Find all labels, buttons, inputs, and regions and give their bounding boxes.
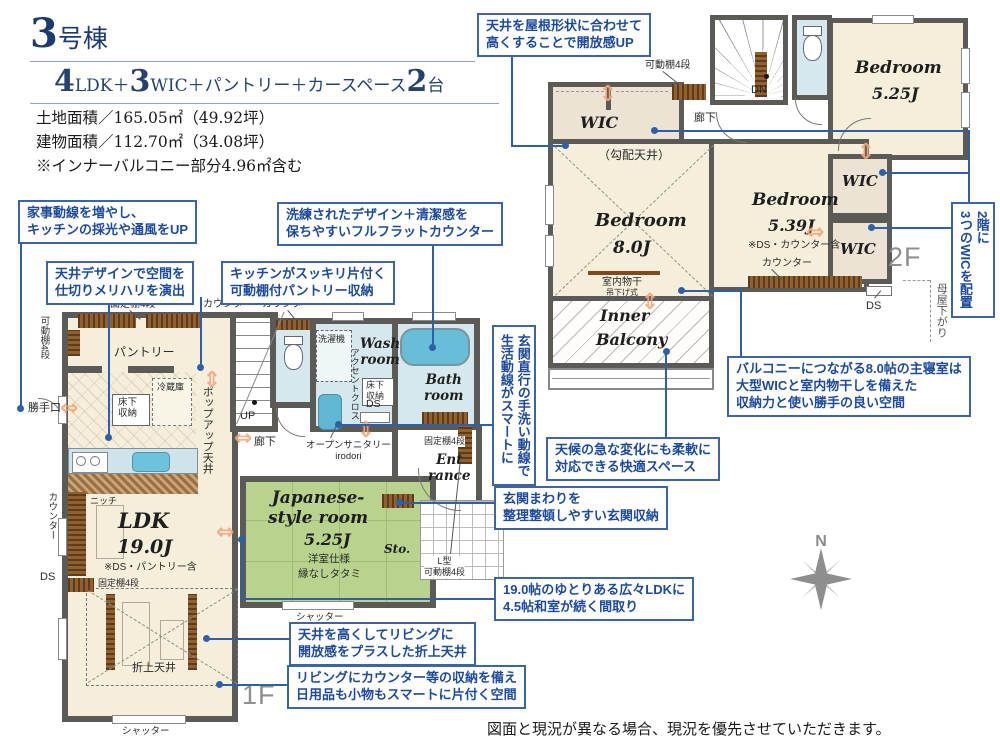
- disclaimer: 図面と現況が異なる場合、現況を優先させていただきます。: [487, 718, 891, 739]
- window-mark: [412, 312, 456, 321]
- callout-roof-ceiling: 天井を屋根形状に合わせて 高くすることで開放感UP: [477, 13, 651, 57]
- connector-dot: [203, 635, 210, 642]
- callout-oriage: 天井を高くしてリビングに 開放感をプラスした折上天井: [289, 622, 476, 666]
- toilet-tank-icon: [284, 336, 303, 345]
- moya-dash: [930, 280, 931, 342]
- up-label: UP: [240, 410, 255, 423]
- bedroom-539-note: ※DS・カウンター含: [748, 240, 840, 252]
- connector-line: [872, 227, 952, 229]
- connector-line: [968, 130, 970, 204]
- low-table: [160, 620, 184, 660]
- building-number: 3: [30, 10, 58, 57]
- movable-shelf-2f: [672, 84, 706, 100]
- popup-ceiling-label: ポップアップ天井: [200, 386, 213, 474]
- building-suffix: 号棟: [58, 24, 108, 53]
- counter-left-wood: [68, 492, 86, 576]
- moya-dash: [903, 280, 930, 281]
- flow-arrow-icon: ⇔: [216, 522, 234, 544]
- l-shelf-label: L型 可動棚4段: [424, 556, 465, 578]
- callout-pantry: キッチンがスッキリ片付く 可動棚付パントリー収納: [221, 261, 395, 305]
- connector-dot: [879, 169, 886, 176]
- wic1-label: WIC: [580, 113, 618, 132]
- coffered-ceiling-label: 折上天井: [132, 662, 176, 675]
- ds-2f-label: DS: [866, 300, 881, 313]
- connector-line: [740, 290, 742, 356]
- door-arc: [795, 98, 822, 125]
- counter-left-label: カウンター: [46, 492, 57, 540]
- toilet-counter: [276, 320, 310, 330]
- fixed-shelf-ldk: [68, 578, 94, 592]
- connector-line: [432, 237, 434, 347]
- layout-part: WIC＋パントリー＋カースペース: [150, 76, 406, 96]
- bedroom-525-name: Bedroom: [855, 58, 942, 78]
- flow-arrow-icon: ⇔: [354, 420, 376, 438]
- bedroom-80-name: Bedroom: [595, 210, 687, 231]
- sofa: [122, 602, 150, 666]
- bedroom-525-size: 5.25J: [872, 84, 919, 103]
- window-mark: [961, 92, 970, 128]
- layout-part: 3: [130, 64, 151, 99]
- layout-part: 4: [54, 64, 75, 99]
- area-note: ※インナーバルコニー部分4.96㎡含む: [36, 154, 303, 178]
- flow-arrow-icon: ⇔: [596, 84, 618, 102]
- stove-burner-icon: [90, 456, 100, 466]
- connector-line: [511, 57, 513, 147]
- entrance-fixed-shelf-label: 固定棚4段: [424, 436, 465, 447]
- window-mark: [545, 235, 554, 267]
- japanese-room-size: 5.25J: [304, 530, 351, 549]
- dn-label: DN: [751, 84, 767, 97]
- storage-label: Sto.: [384, 542, 410, 556]
- bath-room-name: Bath room: [424, 372, 463, 404]
- balcony-rail-line: [552, 378, 710, 379]
- back-door-label: 勝手口: [28, 402, 61, 415]
- fixed-shelf-top: [146, 314, 200, 328]
- ldk-name: LDK: [118, 508, 169, 533]
- connector-dot: [663, 348, 670, 355]
- connector-dot: [335, 421, 342, 428]
- wall-stub: [62, 366, 102, 373]
- counter-front: [68, 474, 198, 494]
- connector-line: [241, 598, 494, 600]
- connector-dot: [562, 142, 569, 149]
- flow-arrow-icon: ⇔: [638, 292, 660, 310]
- movable-shelf-label: 可動棚4段: [38, 316, 49, 359]
- up-dot: [252, 400, 257, 405]
- connector-line: [665, 352, 667, 437]
- entrance-shelf-h: [422, 412, 468, 424]
- callout-ldk: 19.0帖のゆとりある広々LDKに 4.5帖和室が続く間取り: [494, 577, 694, 621]
- layout-part: 2: [407, 64, 428, 99]
- land-area: 土地面積／165.05㎡（49.92坪）: [36, 106, 303, 130]
- compass-icon: N: [786, 528, 856, 623]
- niche-label: ニッチ: [90, 496, 117, 507]
- area-info: 土地面積／165.05㎡（49.92坪） 建物面積／112.70㎡（34.08坪…: [36, 106, 303, 178]
- shutter-label-ldk: シャッター: [122, 726, 170, 737]
- hanger-rail: [616, 91, 668, 92]
- flow-arrow-icon: ⇔: [200, 370, 222, 388]
- connector-line: [200, 297, 202, 367]
- window-mark: [545, 185, 554, 225]
- washer-label: 洗濯機: [318, 334, 345, 345]
- connector-dot: [868, 224, 875, 231]
- moya-label: 母屋下がり: [934, 283, 947, 338]
- toilet-tank-icon: [803, 26, 822, 36]
- connector-line: [682, 290, 742, 292]
- window-mark: [282, 601, 354, 610]
- connector-dot: [678, 287, 685, 294]
- counter-2f-label: カウンター: [762, 258, 812, 270]
- inner-balcony-name2: Balcony: [596, 330, 667, 349]
- callout-flat-counter: 洗練されたデザイン＋清潔感を 保ちやすいフルフラットカウンター: [277, 202, 503, 246]
- flow-arrow-icon: ⇔: [806, 222, 824, 244]
- connector-line: [20, 240, 22, 408]
- window-mark: [961, 48, 970, 84]
- connector-line: [241, 540, 243, 600]
- movable-shelf-2f-label: 可動棚4段: [645, 60, 691, 72]
- connector-line: [207, 638, 289, 640]
- underfloor-storage-kitchen-label: 床下 収納: [118, 397, 137, 420]
- window-mark: [112, 715, 186, 724]
- connector-dot: [17, 405, 24, 412]
- connector-dot: [651, 127, 658, 134]
- japanese-room-note1: 洋室仕様: [308, 553, 350, 566]
- door-arc: [276, 408, 305, 437]
- ldk-size: 19.0J: [117, 536, 172, 558]
- connector-line: [108, 297, 110, 437]
- connector-dot: [396, 499, 403, 506]
- refrigerator-label: 冷蔵庫: [157, 382, 184, 393]
- connector-dot: [238, 536, 245, 543]
- window-mark: [58, 518, 67, 556]
- connector-dot: [429, 344, 436, 351]
- connector-dot: [197, 364, 204, 371]
- counter-2f: [748, 276, 862, 288]
- callout-living-counter: リビングにカウンター等の収納を備え 日用品も小物もスマートに片付く空間: [287, 665, 526, 709]
- pantry-label: パントリー: [114, 345, 175, 359]
- fixed-shelf-top: [78, 314, 136, 328]
- drying-sub-label: 吊下げ式: [606, 288, 638, 298]
- callout-ceiling-design: 天井デザインで空間を 仕切りメリハリを演出: [46, 261, 194, 305]
- callout-wash-line: 玄関直行の手洗い動線で 生活動線がスマートに: [492, 325, 536, 486]
- open-sanitary-label: オープンサニタリー irodori: [306, 440, 391, 463]
- movable-shelf-left: [68, 330, 80, 356]
- layout-part: 台: [427, 76, 444, 96]
- building-area: 建物面積／112.70㎡（34.08坪）: [36, 130, 303, 154]
- ldk-note: ※DS・パントリー含: [104, 562, 197, 574]
- drying-bar: [588, 271, 660, 275]
- bedroom-539-name: Bedroom: [752, 190, 839, 210]
- callout-weather: 天候の急な変化にも柔軟に 対応できる快適スペース: [546, 437, 720, 481]
- wic3-label: WIC: [840, 240, 876, 258]
- layout-part: LDK＋: [75, 76, 130, 96]
- flow-arrow-icon: ⇔: [234, 428, 252, 450]
- japanese-room-name: Japanese- style room: [268, 488, 368, 528]
- dn-dot: [764, 74, 769, 79]
- window-mark: [332, 312, 364, 321]
- floor-plan-sheet: 3号棟 4LDK＋3WIC＋パントリー＋カースペース2台 土地面積／165.05…: [0, 0, 1000, 750]
- callout-master-bedroom: バルコニーにつながる8.0帖の主寝室は 大型WICと室内物干しを備えた 収納力と…: [727, 356, 971, 417]
- connector-dot: [216, 681, 223, 688]
- connector-line: [883, 172, 969, 174]
- stove-burner-icon: [76, 456, 86, 466]
- connector-line: [511, 145, 566, 147]
- callout-genkan: 玄関まわりを 整理整頓しやすい玄関収納: [494, 486, 668, 530]
- sloped-ceiling-label: （勾配天井）: [598, 148, 670, 162]
- window-mark: [872, 15, 914, 24]
- window-mark: [58, 618, 67, 660]
- toilet-icon: [284, 344, 303, 370]
- compass-n-label: N: [815, 533, 827, 550]
- connector-line: [338, 424, 493, 426]
- flow-arrow-icon: ⇔: [854, 142, 876, 160]
- wall-stub: [128, 366, 174, 373]
- accent-cloth-label: アクセントクロス: [349, 348, 360, 420]
- flow-arrow-icon: ⇔: [60, 398, 78, 420]
- toilet-icon: [803, 35, 822, 61]
- ds-left-label: DS: [40, 571, 55, 584]
- floor-tag-2f: 2F: [888, 242, 922, 273]
- callout-wic: 2階に 3つのWICを配置: [951, 202, 995, 318]
- callout-kaji: 家事動線を増やし、 キッチンの採光や通風をUP: [18, 200, 197, 244]
- hallway-1f-label: 廊下: [254, 436, 276, 449]
- bedroom-80-size: 8.0J: [613, 238, 651, 258]
- wash-room-name: Wash room: [360, 336, 400, 368]
- building-title: 3号棟: [30, 10, 475, 62]
- wic2-label: WIC: [842, 172, 878, 190]
- connector-line: [220, 684, 287, 686]
- staircase-2f: [710, 15, 788, 105]
- japanese-room-note2: 縁なしタタミ: [298, 568, 361, 581]
- ds-wash-label: DS: [366, 398, 381, 411]
- fixed-shelf-ldk-label: 固定棚4段: [98, 578, 139, 589]
- entrance-name: Ent rance: [428, 452, 470, 484]
- connector-line: [655, 130, 970, 132]
- layout-summary: 4LDK＋3WIC＋パントリー＋カースペース2台: [30, 62, 499, 104]
- balcony-rail: [548, 368, 714, 390]
- connector-line: [400, 502, 494, 504]
- connector-dot: [105, 434, 112, 441]
- kitchen-sink-icon: [132, 452, 170, 472]
- hallway-2f-label: 廊下: [694, 112, 716, 125]
